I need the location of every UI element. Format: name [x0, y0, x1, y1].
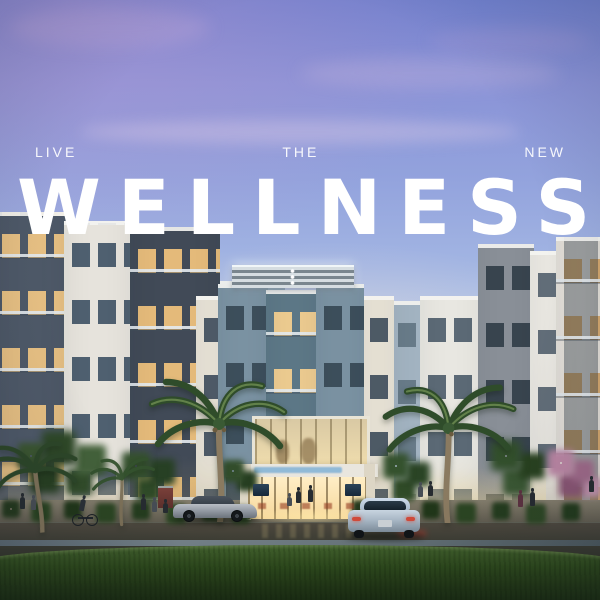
person-silhouette — [152, 501, 157, 512]
car-rear-window — [364, 501, 406, 510]
car-wheel — [231, 510, 243, 522]
person-silhouette — [518, 494, 523, 507]
person-silhouette — [308, 489, 313, 502]
warm-road-reflection — [262, 524, 354, 538]
lobby-screen — [345, 484, 361, 496]
kicker-live: LIVE — [35, 145, 77, 159]
sedan-rear-right — [348, 498, 420, 542]
bicycle — [72, 512, 98, 525]
kicker-row: LIVE THE NEW — [35, 145, 566, 159]
headline: WELLNESS — [0, 170, 600, 246]
person-silhouette — [418, 486, 423, 497]
cloud — [80, 120, 520, 144]
lawn — [0, 545, 600, 600]
atrium-art-figure — [301, 438, 316, 464]
kicker-new: NEW — [524, 145, 566, 159]
parked-sedan-left — [173, 496, 257, 524]
flowering-tree-pink — [560, 462, 562, 464]
person-silhouette — [31, 499, 36, 510]
license-plate — [378, 520, 392, 527]
hero-image: LIVE THE NEW WELLNESS — [0, 0, 600, 600]
cloud — [10, 8, 210, 48]
palm-tree-small — [88, 452, 158, 527]
person-silhouette — [428, 485, 433, 496]
person-silhouette — [296, 491, 301, 503]
person-silhouette — [589, 480, 594, 492]
kicker-the: THE — [282, 145, 319, 159]
car-wheel — [183, 510, 195, 522]
person-silhouette — [287, 497, 292, 506]
person-silhouette — [141, 498, 146, 510]
person-silhouette — [20, 497, 25, 509]
car-taillight — [352, 517, 361, 521]
person-silhouette — [163, 503, 168, 513]
cloud — [430, 28, 590, 54]
car-taillight — [406, 517, 415, 521]
person-silhouette — [530, 492, 535, 506]
cloud — [300, 58, 560, 88]
rooftop-lights — [290, 268, 295, 286]
